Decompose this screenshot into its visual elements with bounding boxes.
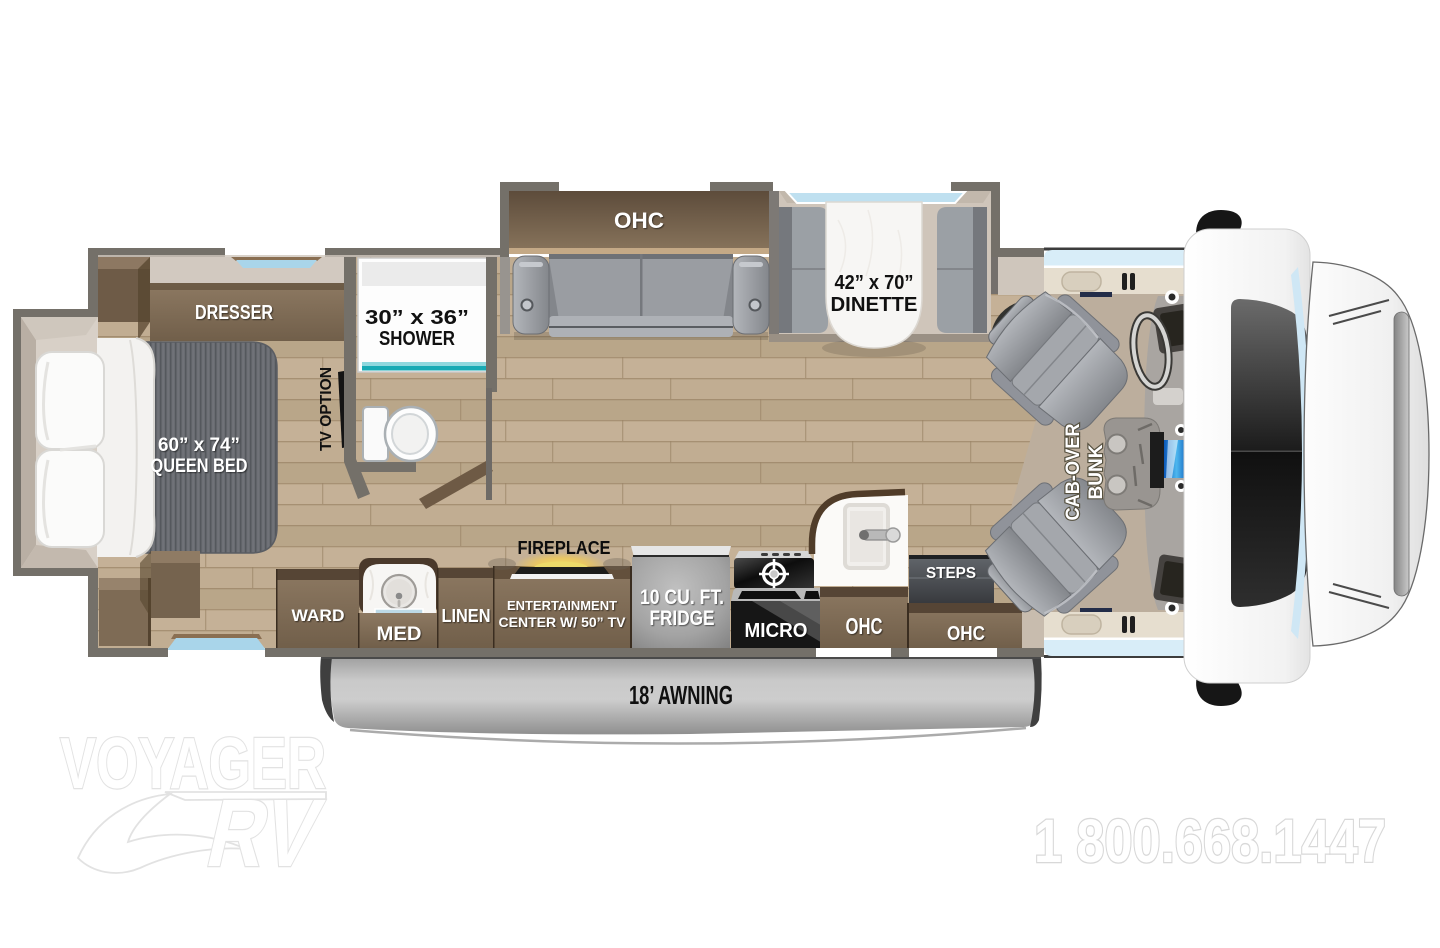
- svg-text:18’ AWNING: 18’ AWNING: [629, 680, 733, 710]
- svg-text:1 800.668.1447: 1 800.668.1447: [1034, 807, 1386, 875]
- svg-text:QUEEN BED: QUEEN BED: [151, 456, 248, 477]
- svg-text:ENTERTAINMENT: ENTERTAINMENT: [507, 598, 617, 613]
- svg-text:WARD: WARD: [292, 606, 345, 625]
- svg-text:OHC: OHC: [846, 613, 883, 639]
- svg-text:42” x 70”: 42” x 70”: [835, 272, 914, 294]
- svg-text:FRIDGE: FRIDGE: [650, 607, 715, 630]
- svg-text:OHC: OHC: [614, 208, 664, 233]
- svg-text:CAB-OVER: CAB-OVER: [1063, 423, 1084, 520]
- svg-text:30” x 36”: 30” x 36”: [365, 307, 469, 329]
- svg-text:SHOWER: SHOWER: [379, 328, 455, 350]
- svg-text:BUNK: BUNK: [1086, 444, 1107, 499]
- svg-text:FIREPLACE: FIREPLACE: [518, 538, 611, 558]
- svg-text:10 CU. FT.: 10 CU. FT.: [640, 586, 724, 609]
- svg-text:CENTER W/ 50” TV: CENTER W/ 50” TV: [499, 614, 627, 630]
- svg-text:LINEN: LINEN: [442, 606, 491, 626]
- svg-text:MED: MED: [377, 624, 422, 645]
- svg-text:DRESSER: DRESSER: [195, 302, 273, 324]
- svg-text:OHC: OHC: [947, 623, 985, 645]
- svg-text:STEPS: STEPS: [926, 565, 976, 582]
- svg-text:MICRO: MICRO: [745, 620, 808, 642]
- svg-text:TV OPTION: TV OPTION: [318, 367, 335, 451]
- svg-text:DINETTE: DINETTE: [831, 294, 918, 316]
- svg-text:60” x 74”: 60” x 74”: [158, 435, 240, 456]
